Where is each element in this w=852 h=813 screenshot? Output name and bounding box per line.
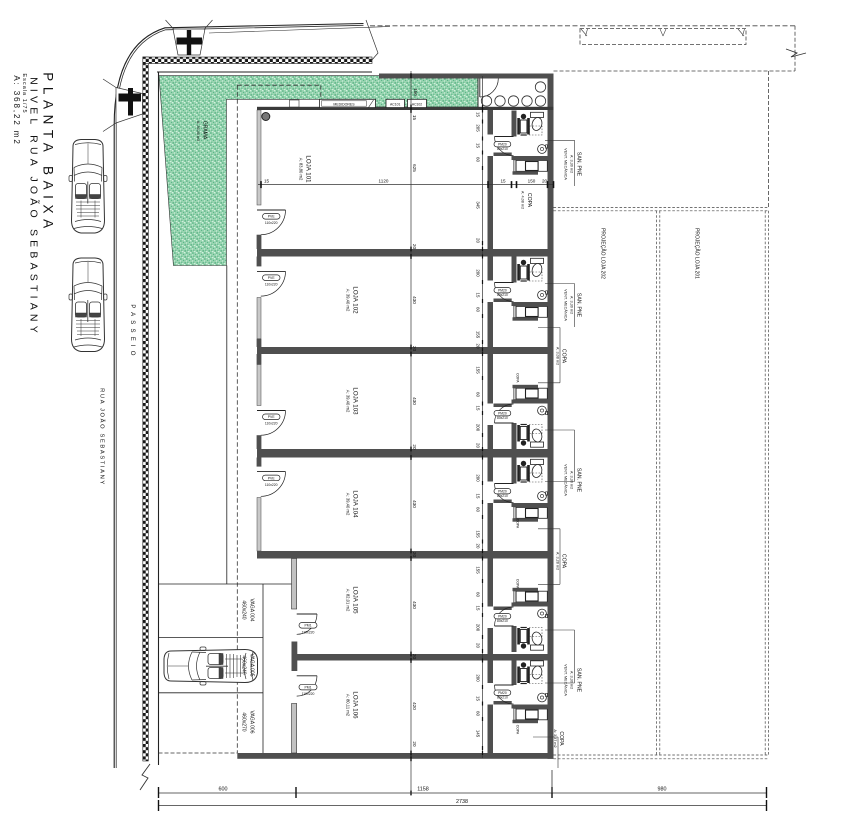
svg-text:420: 420: [412, 702, 417, 710]
svg-text:20: 20: [476, 643, 481, 648]
svg-text:PVE: PVE: [268, 476, 276, 480]
svg-text:110x220: 110x220: [302, 692, 315, 696]
svg-text:SAN. PNE: SAN. PNE: [576, 152, 582, 177]
svg-text:PASSEIO: PASSEIO: [129, 304, 135, 359]
svg-text:VAGA 005: VAGA 005: [249, 654, 255, 677]
svg-text:A: 3,28 m2: A: 3,28 m2: [556, 552, 560, 570]
svg-text:MEDIDORES: MEDIDORES: [333, 102, 355, 106]
svg-text:COPA: COPA: [561, 349, 567, 364]
svg-text:60: 60: [476, 307, 481, 312]
svg-text:625: 625: [412, 164, 417, 172]
svg-text:A: 4,08 m2: A: 4,08 m2: [521, 191, 525, 209]
svg-text:COPA: COPA: [561, 554, 567, 569]
svg-text:A: 36,40 m2: A: 36,40 m2: [196, 121, 200, 141]
svg-text:460x240: 460x240: [241, 655, 247, 674]
svg-text:20: 20: [412, 346, 417, 352]
svg-text:20: 20: [476, 443, 481, 448]
svg-text:PVE: PVE: [268, 276, 276, 280]
svg-text:VAGA 004: VAGA 004: [249, 599, 255, 622]
svg-text:COPA: COPA: [516, 519, 520, 529]
svg-text:LOJA 105: LOJA 105: [352, 586, 359, 614]
svg-text:PLANTA BAIXA: PLANTA BAIXA: [41, 72, 56, 234]
svg-text:15: 15: [476, 112, 481, 117]
svg-text:LOJA 104: LOJA 104: [352, 490, 359, 518]
svg-text:A: 3,30 m2: A: 3,30 m2: [570, 296, 574, 314]
svg-text:A: 39,40 m2: A: 39,40 m2: [346, 493, 351, 516]
svg-text:PM1: PM1: [305, 624, 312, 628]
svg-text:460x270: 460x270: [241, 712, 247, 731]
svg-text:VAGA 006: VAGA 006: [249, 711, 255, 734]
svg-text:A: 39,40 m2: A: 39,40 m2: [346, 390, 351, 413]
svg-text:A: 82,01 m2: A: 82,01 m2: [346, 589, 351, 612]
svg-text:2738: 2738: [456, 799, 468, 805]
svg-text:20: 20: [412, 741, 417, 747]
svg-text:200: 200: [476, 269, 481, 277]
svg-text:460x240: 460x240: [241, 600, 247, 619]
svg-text:A: 368,22 m2: A: 368,22 m2: [12, 75, 21, 145]
svg-text:PVE: PVE: [268, 415, 276, 419]
svg-text:SAN. PNE: SAN. PNE: [576, 293, 582, 318]
svg-text:430: 430: [412, 296, 417, 304]
svg-text:COPA: COPA: [526, 193, 532, 208]
svg-text:345: 345: [476, 201, 481, 209]
svg-text:LOJA 106: LOJA 106: [352, 691, 359, 719]
svg-text:PROJEÇÃO LOJA 201: PROJEÇÃO LOJA 201: [694, 228, 701, 279]
svg-text:1120: 1120: [379, 179, 389, 184]
svg-text:145: 145: [476, 730, 481, 738]
svg-text:A: 3,30 m2: A: 3,30 m2: [570, 671, 574, 689]
svg-text:AC102: AC102: [412, 102, 422, 106]
svg-text:COPA: COPA: [516, 579, 520, 589]
svg-text:110x220: 110x220: [265, 483, 278, 487]
svg-text:200: 200: [476, 474, 481, 482]
svg-text:A: 3,37 m2: A: 3,37 m2: [553, 729, 557, 747]
svg-text:20: 20: [412, 244, 417, 250]
svg-text:RUA JOÃO SEBASTIANY: RUA JOÃO SEBASTIANY: [99, 388, 106, 486]
svg-text:LOJA 102: LOJA 102: [352, 286, 359, 314]
svg-text:LOJA 103: LOJA 103: [352, 387, 359, 415]
svg-text:110x220: 110x220: [265, 283, 278, 287]
svg-text:A: 39,40 m2: A: 39,40 m2: [346, 289, 351, 312]
svg-text:COPA: COPA: [558, 731, 564, 746]
svg-text:80x210: 80x210: [497, 494, 508, 498]
svg-text:15: 15: [264, 179, 270, 184]
svg-text:VENT. MECÂNICA: VENT. MECÂNICA: [564, 664, 569, 696]
svg-text:COPA: COPA: [516, 373, 520, 383]
svg-text:150: 150: [413, 88, 418, 96]
svg-text:60: 60: [476, 507, 481, 512]
svg-text:20: 20: [542, 179, 548, 184]
svg-text:430: 430: [412, 397, 417, 405]
svg-text:A: 3,30 m2: A: 3,30 m2: [570, 471, 574, 489]
svg-text:15: 15: [476, 494, 481, 499]
svg-text:110x220: 110x220: [302, 630, 315, 634]
svg-text:155: 155: [476, 530, 481, 538]
svg-text:60: 60: [476, 392, 481, 397]
svg-text:PVE: PVE: [268, 215, 276, 219]
svg-text:200: 200: [476, 424, 481, 432]
svg-text:430: 430: [412, 601, 417, 609]
svg-text:80x210: 80x210: [497, 416, 508, 420]
svg-text:A: 80,11 m2: A: 80,11 m2: [346, 694, 351, 717]
svg-text:A: 83,80 m2: A: 83,80 m2: [299, 158, 304, 181]
svg-text:200: 200: [476, 674, 481, 682]
svg-text:15: 15: [476, 406, 481, 411]
svg-text:A: 3,30 m2: A: 3,30 m2: [570, 155, 574, 173]
svg-text:PROJEÇÃO LOJA 202: PROJEÇÃO LOJA 202: [600, 228, 607, 279]
svg-text:980: 980: [658, 787, 667, 793]
svg-text:60: 60: [476, 592, 481, 597]
svg-text:PM1: PM1: [305, 686, 312, 690]
svg-text:SAN. PNE: SAN. PNE: [576, 668, 582, 693]
svg-text:NIVEL RUA JOÃO SEBASTIANY: NIVEL RUA JOÃO SEBASTIANY: [28, 77, 41, 337]
svg-text:150: 150: [528, 179, 536, 184]
svg-text:20: 20: [476, 544, 481, 549]
svg-text:155: 155: [476, 566, 481, 574]
svg-text:1158: 1158: [417, 787, 429, 793]
svg-text:VENT. MECÂNICA: VENT. MECÂNICA: [564, 289, 569, 321]
svg-text:60: 60: [476, 157, 481, 162]
svg-text:200: 200: [476, 624, 481, 632]
svg-text:600: 600: [219, 787, 228, 793]
svg-text:15: 15: [476, 143, 481, 148]
svg-text:20: 20: [476, 344, 481, 349]
svg-text:80x210: 80x210: [497, 147, 508, 151]
svg-text:205: 205: [476, 124, 481, 132]
svg-text:AC101: AC101: [390, 102, 400, 106]
svg-text:15: 15: [476, 696, 481, 701]
svg-text:GRAMA: GRAMA: [202, 121, 208, 140]
svg-text:155: 155: [476, 331, 481, 339]
svg-text:80x210: 80x210: [497, 619, 508, 623]
svg-text:20: 20: [412, 654, 417, 660]
svg-text:110x220: 110x220: [265, 221, 278, 225]
svg-text:VENT. MECÂNICA: VENT. MECÂNICA: [564, 148, 569, 180]
svg-text:20: 20: [412, 444, 417, 450]
svg-text:COPA: COPA: [516, 725, 520, 735]
svg-text:430: 430: [412, 500, 417, 508]
svg-text:20: 20: [476, 238, 481, 243]
svg-text:15: 15: [500, 179, 506, 184]
svg-text:LOJA 101: LOJA 101: [304, 155, 311, 183]
svg-text:15: 15: [476, 293, 481, 298]
svg-text:80x210: 80x210: [497, 293, 508, 297]
svg-text:15: 15: [476, 606, 481, 611]
svg-text:110x220: 110x220: [265, 422, 278, 426]
svg-text:155: 155: [476, 366, 481, 374]
svg-text:A: 3,08 m2: A: 3,08 m2: [556, 347, 560, 365]
svg-text:SAN. PNE: SAN. PNE: [576, 468, 582, 493]
svg-text:20: 20: [412, 552, 417, 558]
svg-text:15: 15: [412, 115, 417, 121]
svg-text:60: 60: [476, 711, 481, 716]
svg-text:VENT. MECÂNICA: VENT. MECÂNICA: [564, 464, 569, 496]
svg-text:80x210: 80x210: [497, 695, 508, 699]
